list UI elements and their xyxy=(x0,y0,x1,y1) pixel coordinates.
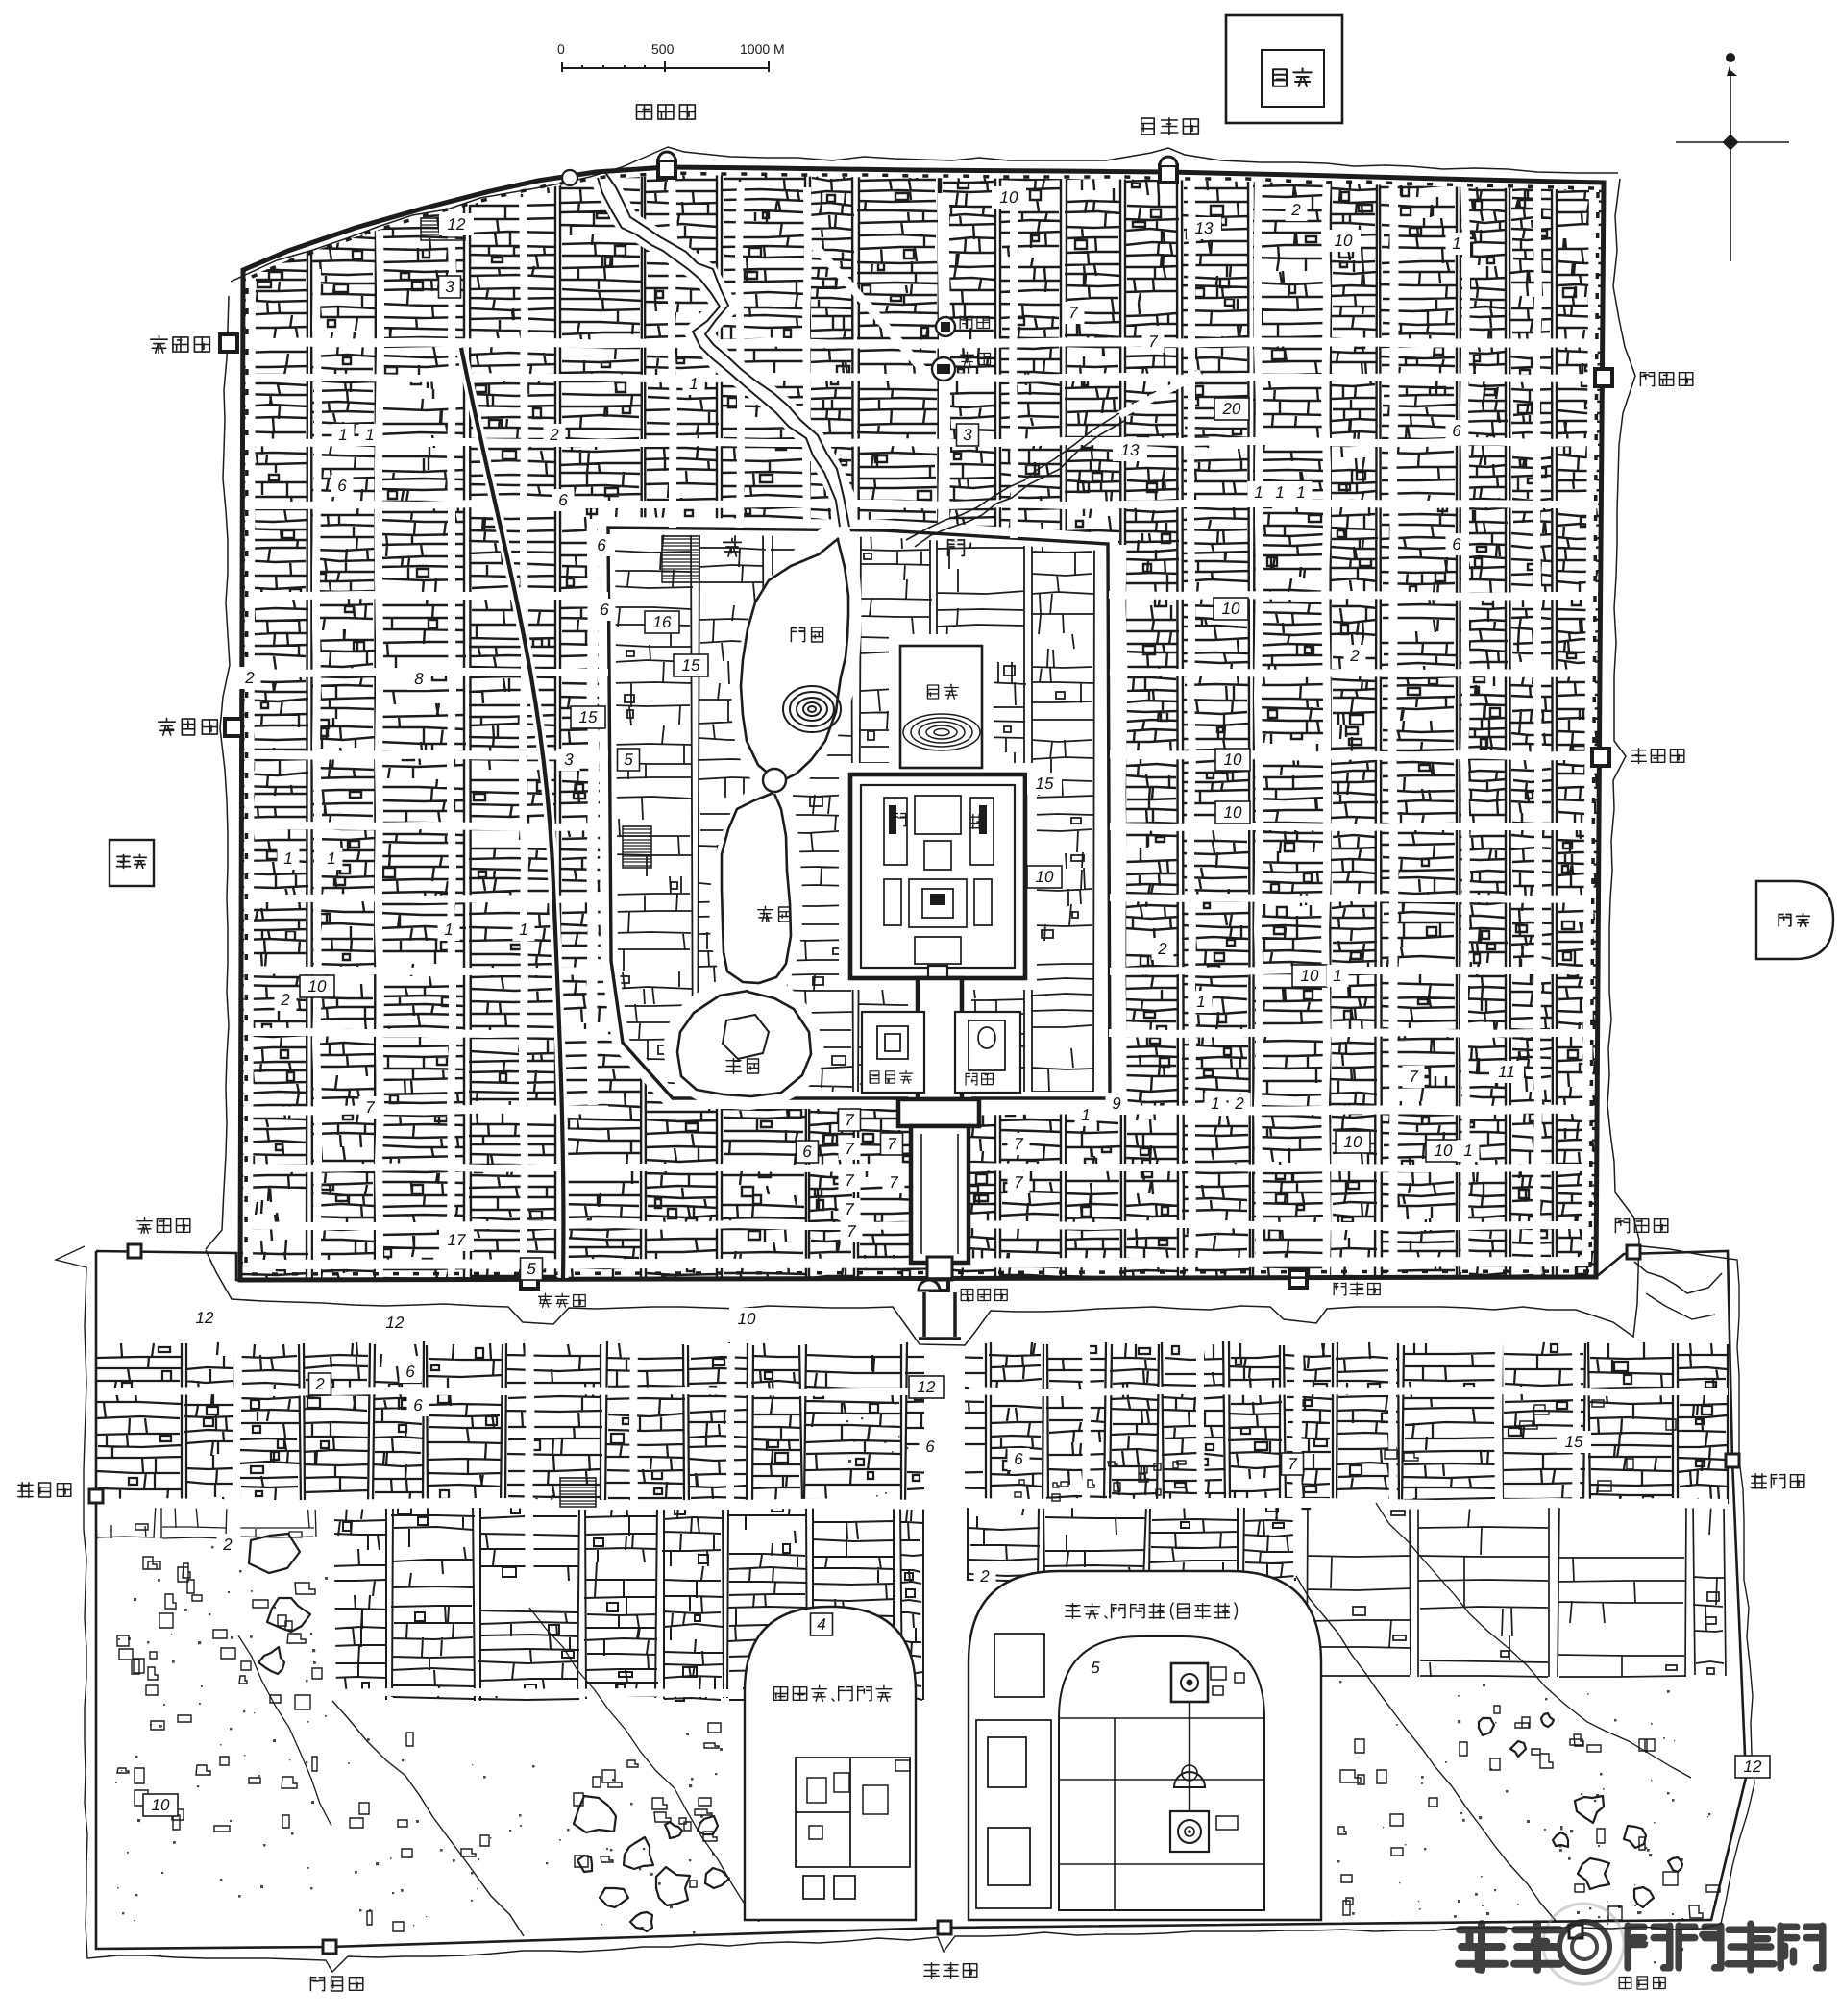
svg-text:1: 1 xyxy=(1463,1142,1472,1160)
svg-text:7: 7 xyxy=(365,1098,375,1117)
svg-text:6: 6 xyxy=(1014,1450,1023,1468)
svg-text:7: 7 xyxy=(845,1140,854,1158)
svg-text:7: 7 xyxy=(846,1222,856,1241)
svg-text:6: 6 xyxy=(802,1143,812,1161)
svg-text:2: 2 xyxy=(222,1536,233,1554)
svg-text:9: 9 xyxy=(1112,1094,1121,1113)
svg-text:2: 2 xyxy=(1157,940,1167,958)
svg-text:20: 20 xyxy=(1222,400,1241,418)
svg-text:13: 13 xyxy=(1121,441,1140,459)
svg-text:1: 1 xyxy=(1081,1106,1090,1124)
svg-text:2: 2 xyxy=(979,1567,990,1586)
svg-text:1: 1 xyxy=(1452,234,1460,253)
svg-text:10: 10 xyxy=(1301,967,1319,985)
svg-text:1: 1 xyxy=(444,921,453,939)
svg-text:7: 7 xyxy=(1014,1135,1023,1153)
svg-text:6: 6 xyxy=(337,477,347,495)
svg-text:10: 10 xyxy=(1222,600,1240,618)
svg-text:7: 7 xyxy=(1014,1173,1023,1192)
svg-text:12: 12 xyxy=(448,215,466,234)
svg-text:1: 1 xyxy=(1196,993,1205,1011)
svg-text:2: 2 xyxy=(1234,1094,1244,1113)
svg-text:10: 10 xyxy=(1344,1133,1362,1151)
svg-text:1: 1 xyxy=(689,375,698,393)
svg-text:2: 2 xyxy=(549,426,559,444)
svg-text:7: 7 xyxy=(845,1200,854,1218)
svg-text:11: 11 xyxy=(1498,1063,1515,1081)
svg-text:1: 1 xyxy=(1296,483,1305,502)
svg-text:15: 15 xyxy=(579,708,598,726)
svg-text:5: 5 xyxy=(1091,1659,1100,1677)
svg-text:10: 10 xyxy=(1435,1142,1453,1160)
svg-text:7: 7 xyxy=(887,1135,896,1153)
svg-text:2: 2 xyxy=(280,991,290,1009)
svg-text:7: 7 xyxy=(1068,304,1078,322)
svg-text:6: 6 xyxy=(597,536,606,554)
svg-text:3: 3 xyxy=(445,278,454,296)
svg-text:10: 10 xyxy=(152,1796,170,1814)
svg-text:10: 10 xyxy=(1036,868,1054,886)
svg-text:5: 5 xyxy=(624,750,633,769)
svg-text:1: 1 xyxy=(365,426,374,444)
svg-text:6: 6 xyxy=(925,1438,935,1456)
svg-text:7: 7 xyxy=(1409,1068,1418,1086)
svg-text:10: 10 xyxy=(308,977,327,996)
svg-text:6: 6 xyxy=(405,1363,415,1381)
svg-text:3: 3 xyxy=(963,426,972,444)
svg-text:1: 1 xyxy=(1333,967,1341,985)
svg-text:1: 1 xyxy=(1275,483,1284,502)
svg-text:1: 1 xyxy=(338,426,347,444)
svg-text:12: 12 xyxy=(1744,1758,1762,1776)
svg-text:2: 2 xyxy=(314,1375,325,1393)
svg-text:10: 10 xyxy=(1224,803,1242,822)
svg-text:15: 15 xyxy=(1565,1433,1583,1451)
svg-text:12: 12 xyxy=(386,1314,405,1332)
svg-text:16: 16 xyxy=(653,613,672,631)
svg-text:10: 10 xyxy=(1000,188,1018,207)
svg-text:10: 10 xyxy=(1335,232,1353,250)
svg-text:7: 7 xyxy=(845,1111,854,1129)
svg-text:15: 15 xyxy=(682,656,700,675)
svg-text:1: 1 xyxy=(283,849,292,868)
svg-text:17: 17 xyxy=(448,1231,466,1249)
svg-text:500: 500 xyxy=(651,41,675,57)
svg-text:12: 12 xyxy=(196,1309,214,1327)
svg-text:6: 6 xyxy=(600,601,609,619)
svg-text:6: 6 xyxy=(413,1396,423,1414)
svg-text:4: 4 xyxy=(817,1615,825,1634)
svg-text:7: 7 xyxy=(1148,332,1158,351)
svg-text:1: 1 xyxy=(327,849,335,868)
svg-text:15: 15 xyxy=(1036,774,1054,793)
svg-text:2: 2 xyxy=(1349,647,1360,665)
svg-text:10: 10 xyxy=(738,1310,756,1328)
svg-text:1: 1 xyxy=(519,921,527,939)
svg-text:12: 12 xyxy=(918,1378,936,1396)
svg-text:6: 6 xyxy=(1452,422,1461,440)
svg-text:5: 5 xyxy=(527,1260,536,1278)
svg-text:2: 2 xyxy=(1290,201,1301,219)
svg-text:7: 7 xyxy=(1288,1455,1297,1473)
svg-text:8: 8 xyxy=(414,670,424,688)
svg-text:1: 1 xyxy=(1211,1094,1219,1113)
svg-text:1: 1 xyxy=(1254,483,1263,502)
svg-text:13: 13 xyxy=(1195,219,1214,237)
svg-text:10: 10 xyxy=(1224,750,1242,769)
svg-text:6: 6 xyxy=(1452,535,1461,553)
svg-text:2: 2 xyxy=(244,669,255,687)
svg-text:7: 7 xyxy=(845,1171,854,1190)
svg-text:0: 0 xyxy=(557,41,565,57)
svg-text:3: 3 xyxy=(564,750,574,769)
svg-text:7: 7 xyxy=(889,1173,898,1192)
svg-text:6: 6 xyxy=(558,491,568,509)
svg-text:1000 M: 1000 M xyxy=(740,41,785,57)
